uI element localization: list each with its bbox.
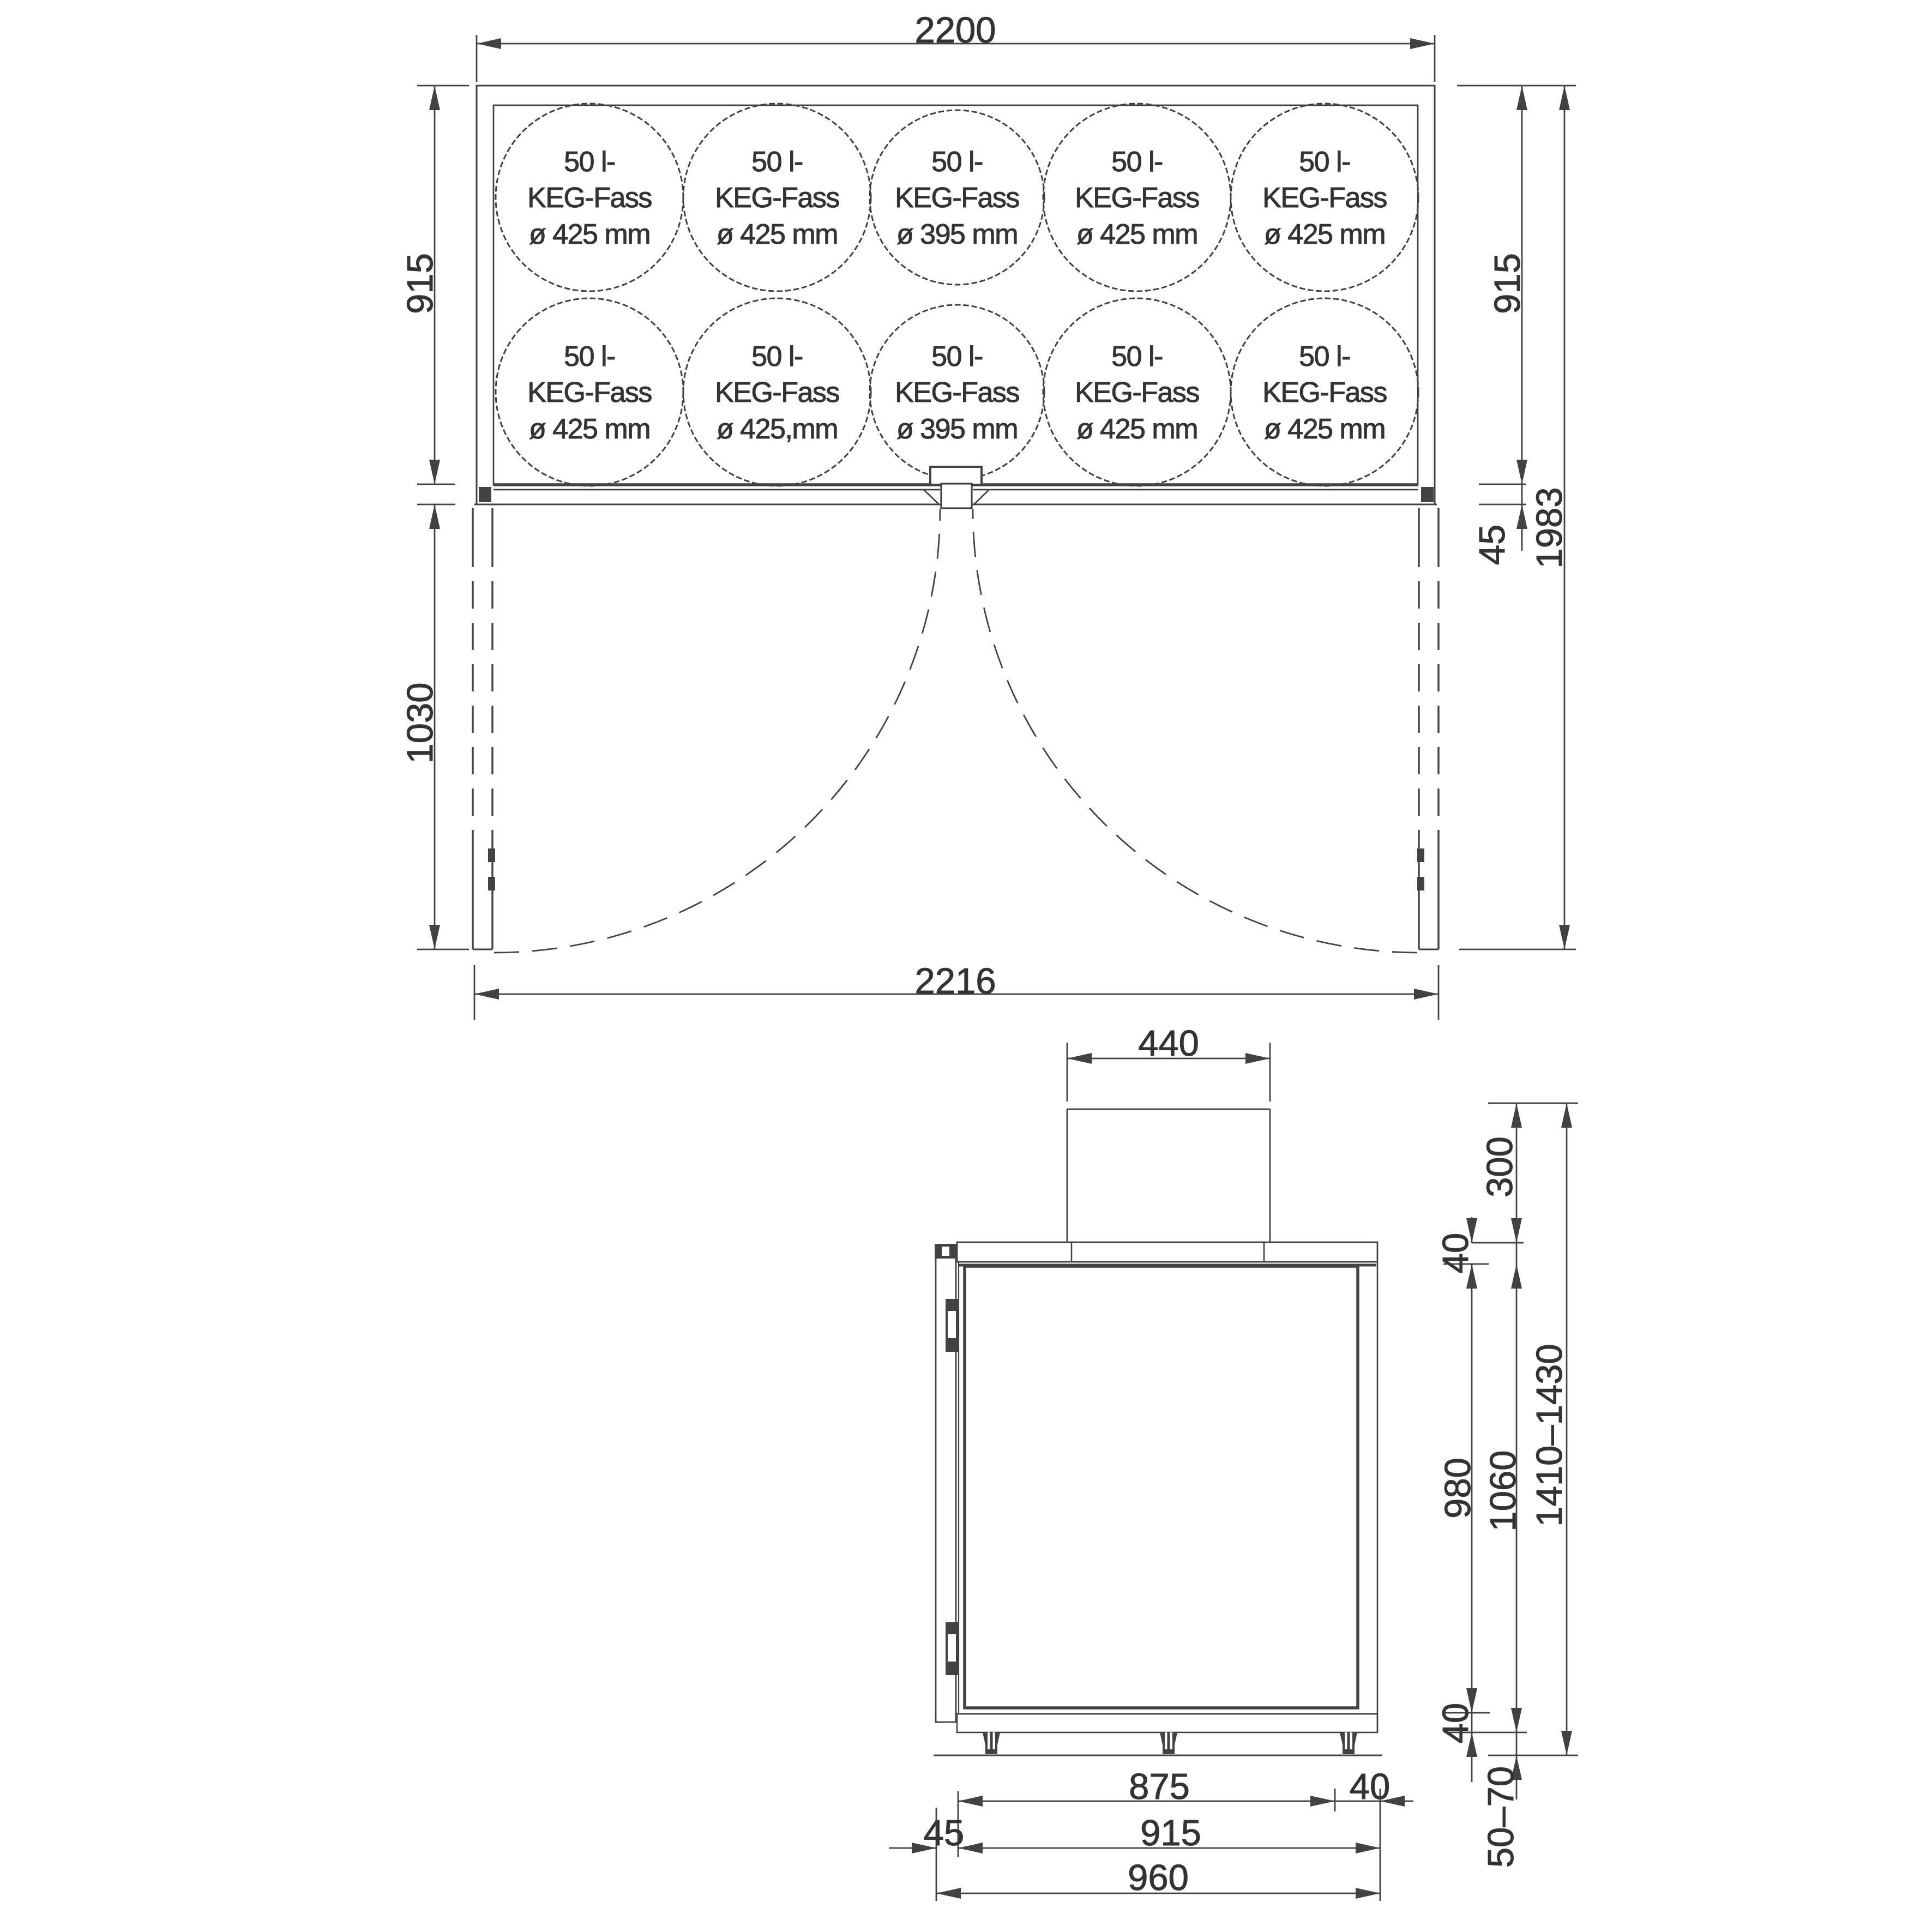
svg-text:ø 425 mm: ø 425 mm bbox=[529, 413, 650, 445]
svg-text:1060: 1060 bbox=[1483, 1450, 1524, 1531]
svg-text:45: 45 bbox=[1472, 525, 1513, 565]
svg-text:ø 425,mm: ø 425,mm bbox=[717, 413, 838, 445]
svg-text:50 l-: 50 l- bbox=[931, 341, 983, 372]
svg-text:50 l-: 50 l- bbox=[1111, 146, 1163, 178]
svg-text:ø 425 mm: ø 425 mm bbox=[529, 219, 650, 250]
svg-text:KEG-Fass: KEG-Fass bbox=[527, 377, 652, 408]
svg-text:KEG-Fass: KEG-Fass bbox=[895, 182, 1019, 214]
svg-text:KEG-Fass: KEG-Fass bbox=[1075, 377, 1199, 408]
svg-text:875: 875 bbox=[1129, 1766, 1190, 1807]
svg-text:40: 40 bbox=[1350, 1766, 1391, 1807]
svg-text:2200: 2200 bbox=[914, 10, 996, 51]
svg-text:1410–1430: 1410–1430 bbox=[1529, 1344, 1570, 1526]
svg-text:KEG-Fass: KEG-Fass bbox=[527, 182, 652, 214]
svg-text:KEG-Fass: KEG-Fass bbox=[895, 377, 1019, 408]
svg-text:915: 915 bbox=[1487, 253, 1528, 314]
svg-text:ø 425 mm: ø 425 mm bbox=[1076, 413, 1197, 445]
svg-text:KEG-Fass: KEG-Fass bbox=[1075, 182, 1199, 214]
svg-text:45: 45 bbox=[924, 1813, 965, 1853]
svg-text:KEG-Fass: KEG-Fass bbox=[1262, 182, 1387, 214]
svg-text:40: 40 bbox=[1435, 1233, 1476, 1274]
svg-text:ø 395 mm: ø 395 mm bbox=[896, 219, 1018, 250]
svg-text:50 l-: 50 l- bbox=[1111, 341, 1163, 372]
svg-text:KEG-Fass: KEG-Fass bbox=[715, 377, 839, 408]
svg-text:50 l-: 50 l- bbox=[1299, 146, 1350, 178]
svg-text:980: 980 bbox=[1437, 1458, 1478, 1519]
svg-text:50 l-: 50 l- bbox=[1299, 341, 1350, 372]
svg-text:50 l-: 50 l- bbox=[564, 341, 615, 372]
svg-text:2216: 2216 bbox=[914, 961, 996, 1002]
svg-text:ø 425 mm: ø 425 mm bbox=[1076, 219, 1197, 250]
svg-text:915: 915 bbox=[1140, 1813, 1201, 1853]
svg-text:915: 915 bbox=[400, 253, 441, 314]
svg-text:50 l-: 50 l- bbox=[564, 146, 615, 178]
svg-text:50 l-: 50 l- bbox=[751, 146, 803, 178]
svg-text:960: 960 bbox=[1128, 1857, 1189, 1898]
svg-text:ø 425 mm: ø 425 mm bbox=[1264, 219, 1385, 250]
svg-text:KEG-Fass: KEG-Fass bbox=[715, 182, 839, 214]
svg-text:440: 440 bbox=[1138, 1023, 1199, 1064]
svg-text:1983: 1983 bbox=[1529, 487, 1570, 568]
svg-text:50 l-: 50 l- bbox=[751, 341, 803, 372]
svg-text:50–70: 50–70 bbox=[1480, 1766, 1521, 1868]
svg-text:40: 40 bbox=[1435, 1703, 1476, 1744]
svg-text:1030: 1030 bbox=[400, 682, 441, 763]
svg-text:50 l-: 50 l- bbox=[931, 146, 983, 178]
svg-text:KEG-Fass: KEG-Fass bbox=[1262, 377, 1387, 408]
svg-text:ø 425 mm: ø 425 mm bbox=[717, 219, 838, 250]
svg-text:ø 395 mm: ø 395 mm bbox=[896, 413, 1018, 445]
svg-text:ø 425 mm: ø 425 mm bbox=[1264, 413, 1385, 445]
svg-text:300: 300 bbox=[1479, 1136, 1520, 1197]
